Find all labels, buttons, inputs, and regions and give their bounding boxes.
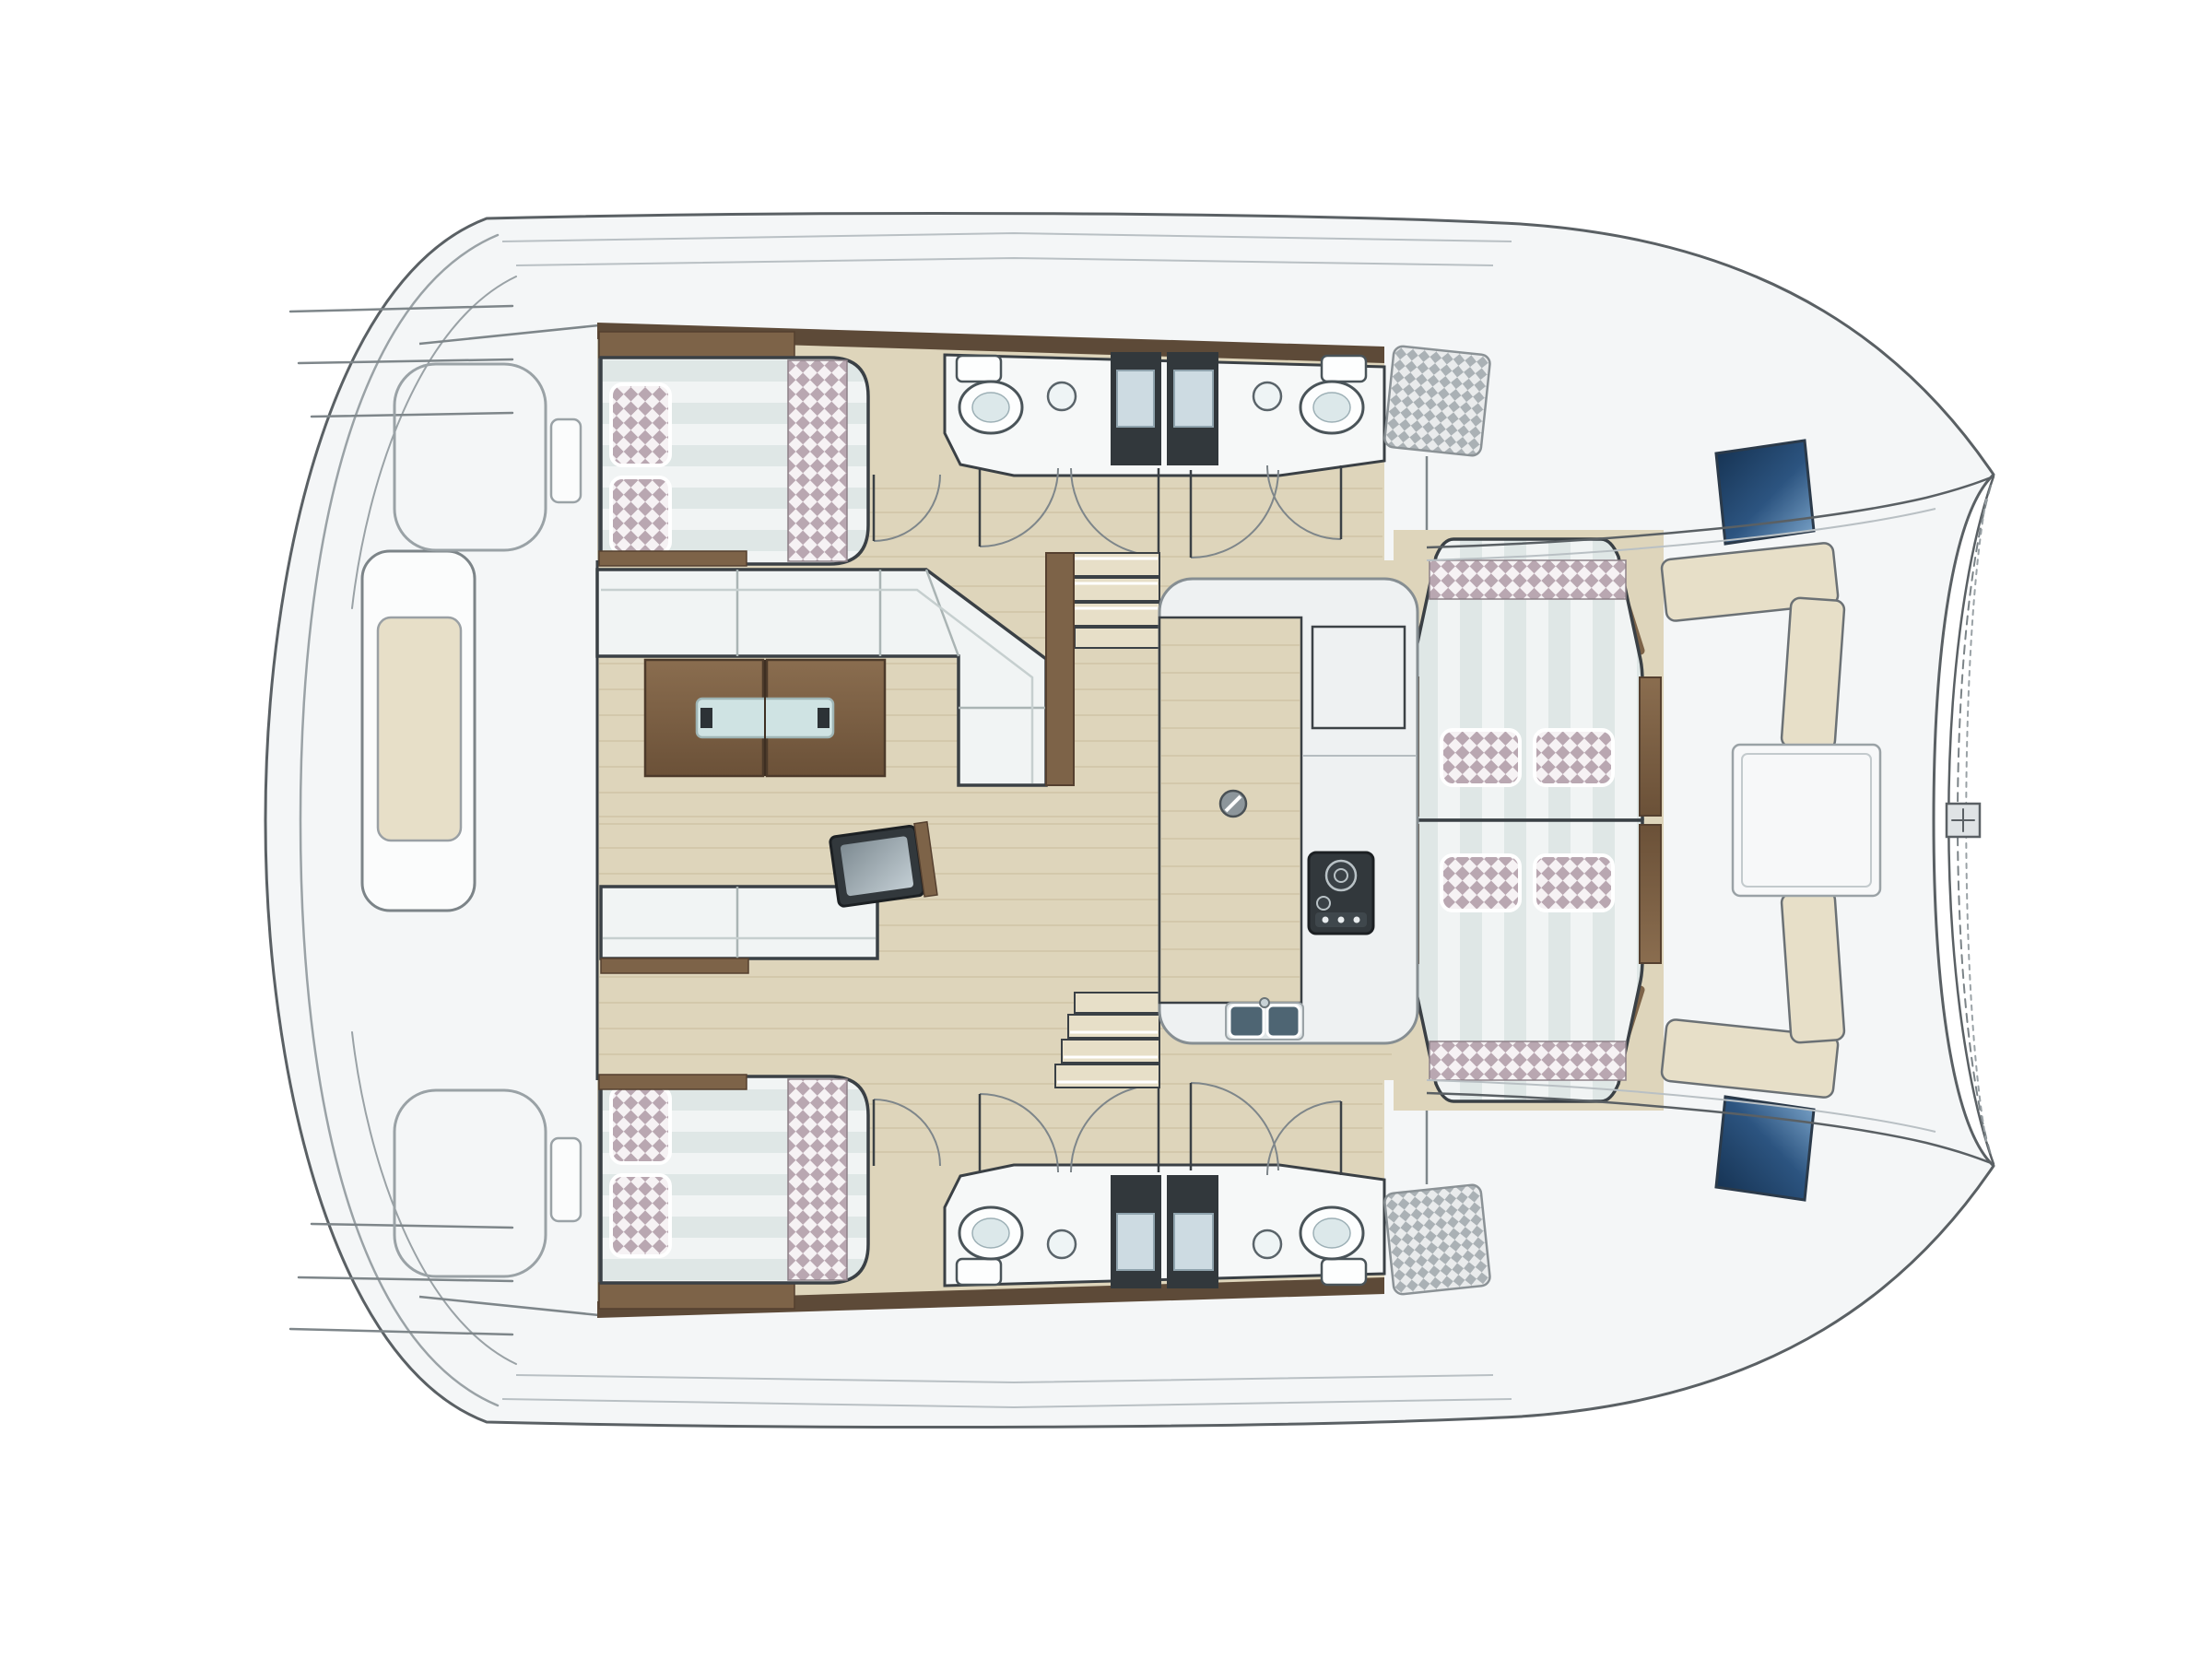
wash-basin-icon [1048,382,1076,410]
salon-sofa-aft [601,887,877,958]
shower-tray [1117,370,1154,427]
aft-locker-lid [551,419,581,502]
berth-pillow [611,384,670,465]
anchor-locker [1733,745,1880,896]
table-leaf-rail [1640,677,1661,816]
helm-bench-cushion [378,617,461,841]
bowsprit-fitting [1947,804,1980,837]
catamaran-floorplan [0,0,2212,1658]
dinette-lounge-half [1394,530,1664,820]
tv-screen [840,836,913,897]
stove [1309,853,1373,934]
heads-compartments [945,352,1384,476]
coffee-table [645,660,885,776]
sink-basin [1230,1005,1264,1037]
dinette-pillow [1535,730,1613,785]
floorplan-page [0,0,2212,1658]
burner [1326,861,1356,890]
tv-console [829,822,937,909]
wash-basin-icon [1253,382,1281,410]
sink-basin [1267,1005,1300,1037]
berth-foot-trim [599,551,747,566]
galley-sink [1226,998,1303,1040]
shower-tray [1174,370,1213,427]
blanket-checker-band [788,360,847,561]
storage-hatch [1384,346,1491,456]
stair-tread [1062,578,1159,601]
galley [1159,579,1418,1043]
berth-pillow [611,477,670,553]
stair-tread [1075,628,1159,648]
berth-headboard-trim [599,332,794,358]
dinette-pillow [1441,730,1520,785]
faucet-icon [1260,998,1269,1007]
double-berth [599,332,868,566]
burner [1317,897,1330,910]
helm-bench [362,551,475,911]
stair-tread [1068,603,1159,626]
sofa-back-panel [1046,553,1074,785]
dinette-checker-band [1430,560,1626,599]
sofa-aft-trim [601,958,748,973]
